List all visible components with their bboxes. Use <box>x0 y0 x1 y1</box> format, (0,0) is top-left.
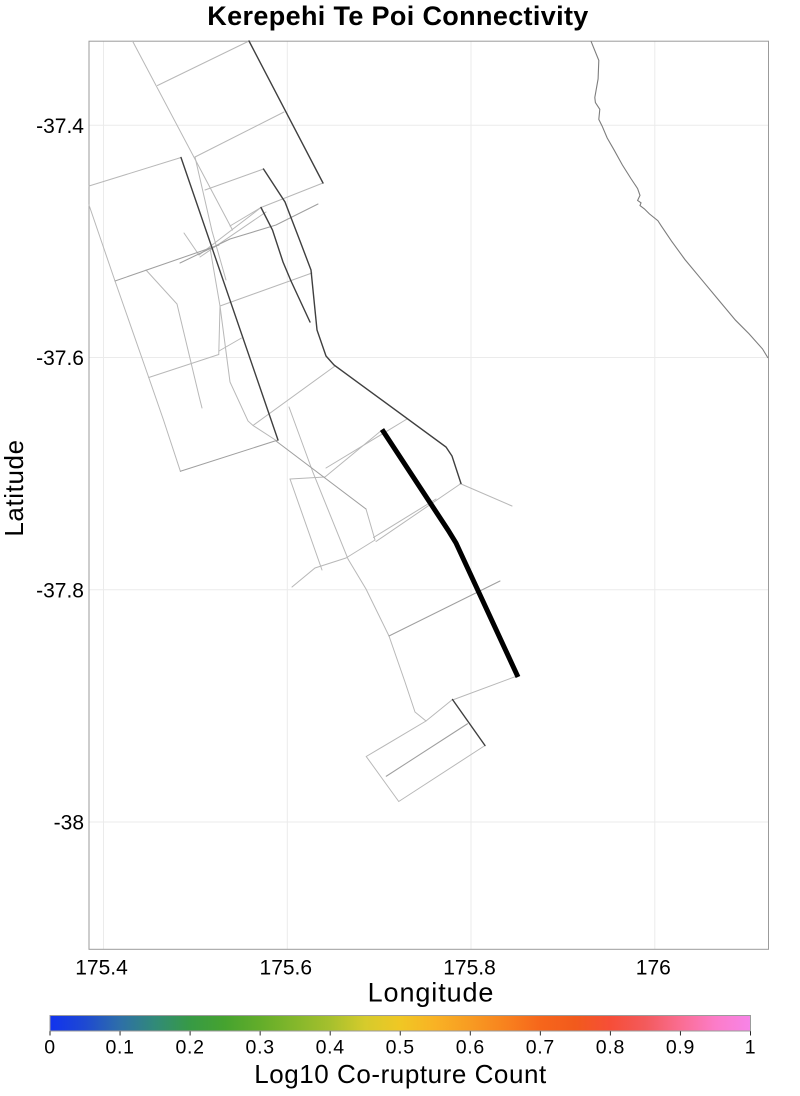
svg-text:-37.6: -37.6 <box>36 347 84 370</box>
svg-text:0.7: 0.7 <box>526 1037 555 1059</box>
svg-text:175.6: 175.6 <box>260 957 313 980</box>
svg-text:0.8: 0.8 <box>596 1037 625 1059</box>
svg-text:1: 1 <box>745 1037 757 1059</box>
svg-text:0.3: 0.3 <box>246 1037 275 1059</box>
svg-text:Longitude: Longitude <box>368 978 495 1008</box>
svg-text:0: 0 <box>44 1037 56 1059</box>
svg-text:0.5: 0.5 <box>386 1037 415 1059</box>
svg-text:Kerepehi Te Poi Connectivity: Kerepehi Te Poi Connectivity <box>207 1 588 31</box>
svg-text:0.1: 0.1 <box>105 1037 134 1059</box>
svg-text:175.4: 175.4 <box>75 957 128 980</box>
svg-text:Latitude: Latitude <box>0 439 29 536</box>
svg-text:-37.4: -37.4 <box>36 115 84 138</box>
svg-text:0.6: 0.6 <box>456 1037 485 1059</box>
svg-text:-38: -38 <box>54 812 84 835</box>
svg-text:176: 176 <box>636 957 671 980</box>
svg-text:0.4: 0.4 <box>316 1037 345 1059</box>
svg-text:-37.8: -37.8 <box>36 579 84 602</box>
svg-text:0.2: 0.2 <box>175 1037 204 1059</box>
svg-text:Log10 Co-rupture Count: Log10 Co-rupture Count <box>254 1059 547 1089</box>
svg-text:175.8: 175.8 <box>443 957 496 980</box>
svg-text:0.9: 0.9 <box>666 1037 695 1059</box>
